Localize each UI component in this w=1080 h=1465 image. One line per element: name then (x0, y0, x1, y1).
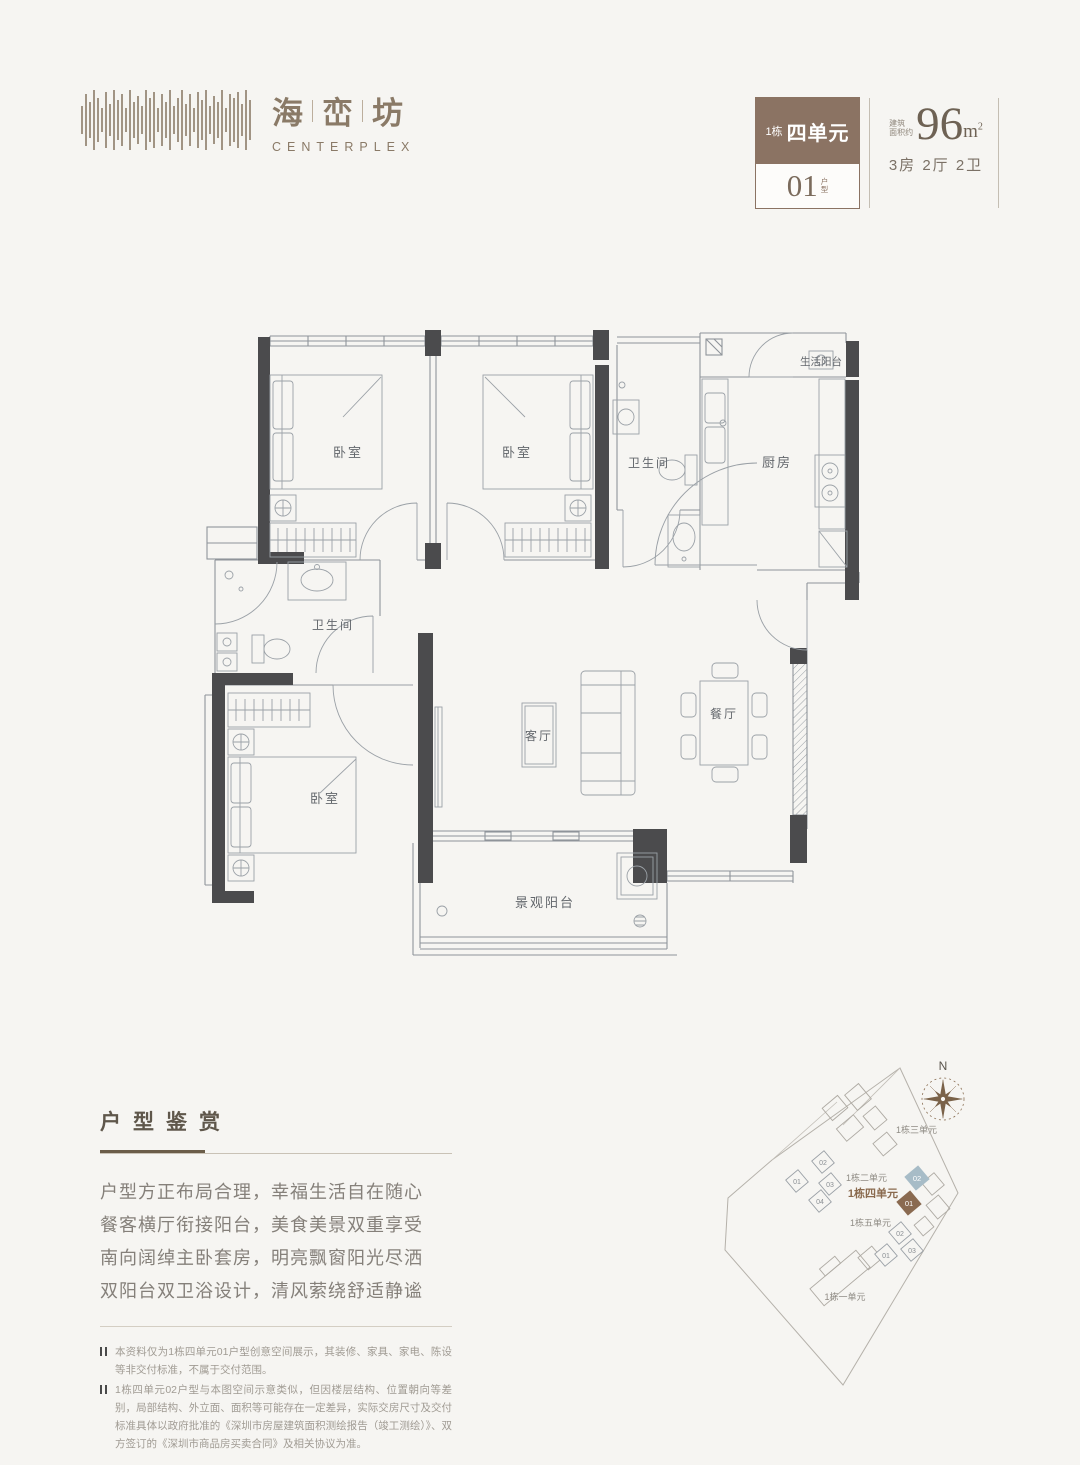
structural-walls (212, 330, 859, 903)
unit-marker-secondary: 02 (913, 1174, 921, 1183)
note-bullet-icon (100, 1385, 107, 1394)
room-label-landscape-balcony: 景观阳台 (515, 895, 575, 910)
unit-label: 四单元 (787, 117, 850, 146)
svg-text:02: 02 (819, 1160, 827, 1167)
room-label-bathroom: 卫生间 (628, 456, 670, 470)
logo-separator (312, 100, 313, 122)
area-info: 建筑 面积约 96 m2 3房 2厅 2卫 (880, 102, 992, 175)
unit-badge-header: 1栋 四单元 (756, 98, 859, 164)
room-label-kitchen: 厨房 (762, 455, 792, 470)
unit-badge-body: 01 户 型 (756, 164, 859, 208)
area-prefix: 建筑 面积约 (889, 119, 913, 137)
unit-markers-building2: 01 02 03 04 (786, 1151, 842, 1213)
wall-lines (205, 333, 859, 955)
building-labels: 1栋三单元 1栋二单元 1栋五单元 1栋一单元 1栋四单元 (824, 1124, 937, 1302)
svg-text:02: 02 (896, 1231, 904, 1238)
door-arcs (316, 333, 807, 765)
unit-number: 01 (787, 168, 818, 204)
room-label-dining-room: 餐厅 (710, 706, 738, 721)
north-label: N (939, 1059, 948, 1073)
area-unit: m2 (963, 121, 983, 143)
brand-char: 峦 (322, 88, 353, 133)
unit-markers-building5: 02 01 03 (875, 1222, 924, 1267)
room-label-master-bedroom: 卧室 (310, 791, 340, 806)
section-title: 户型鉴赏 (100, 1106, 452, 1136)
brand-name-cn: 海峦坊 (272, 88, 415, 133)
building-label: 1栋 (765, 123, 782, 139)
room-label-bedroom: 卧室 (333, 445, 363, 460)
building4-label: 1栋四单元 (848, 1186, 898, 1200)
compass-icon: N (922, 1059, 964, 1120)
floorplan-drawing: 卧室 卧室 卫生间 厨房 生活阳台 卫生间 卧室 客厅 餐厅 景观阳台 (185, 315, 875, 985)
appreciation-line: 双阳台双卫浴设计，清风萦绕舒适静谧 (100, 1275, 452, 1308)
logo-separator (362, 100, 363, 122)
svg-text:01: 01 (882, 1253, 890, 1260)
site-boundary (725, 1068, 958, 1385)
area-value: 96 (916, 102, 963, 146)
logo-barcode-icon (80, 89, 256, 153)
disclaimer-note: 本资料仅为1栋四单元01户型创意空间展示，其装修、家具、家电、陈设等非交付标准，… (100, 1343, 452, 1379)
unit-markers-building4: 02 01 (896, 1165, 929, 1215)
room-label-bathroom: 卫生间 (312, 618, 354, 632)
appreciation-section: 户型鉴赏 户型方正布局合理，幸福生活自在随心 餐客横厅衔接阳台，美食美景双重享受… (100, 1106, 452, 1455)
title-divider (100, 1150, 452, 1154)
svg-text:01: 01 (793, 1179, 801, 1186)
header-divider (998, 98, 999, 208)
brand-char: 海 (272, 88, 303, 133)
svg-text:03: 03 (908, 1248, 916, 1255)
appreciation-line: 户型方正布局合理，幸福生活自在随心 (100, 1176, 452, 1209)
room-label-service-balcony: 生活阳台 (800, 355, 842, 368)
brand-name-en: CENTERPLEX (272, 140, 415, 154)
brand-logo: 海峦坊 CENTERPLEX (80, 88, 415, 154)
appreciation-line: 南向阔绰主卧套房，明亮飘窗阳光尽洒 (100, 1242, 452, 1275)
disclaimer-note: 1栋四单元02户型与本图空间示意类似，但因楼层结构、位置朝向等差别，局部结构、外… (100, 1381, 452, 1453)
building3-label: 1栋三单元 (896, 1124, 937, 1135)
disclaimer-notes: 本资料仅为1栋四单元01户型创意空间展示，其装修、家具、家电、陈设等非交付标准，… (100, 1343, 452, 1453)
room-label-living-room: 客厅 (525, 728, 553, 743)
appreciation-lines: 户型方正布局合理，幸福生活自在随心 餐客横厅衔接阳台，美食美景双重享受 南向阔绰… (100, 1176, 452, 1308)
floorplan-poster: 海峦坊 CENTERPLEX 1栋 四单元 01 户 型 建筑 面积约 96 m… (0, 0, 1080, 1465)
appreciation-line: 餐客横厅衔接阳台，美食美景双重享受 (100, 1209, 452, 1242)
unit-number-suffix: 户 型 (821, 178, 829, 194)
unit-marker-highlight: 01 (905, 1199, 913, 1208)
notes-divider (100, 1326, 452, 1327)
brand-char: 坊 (372, 88, 403, 133)
svg-text:04: 04 (816, 1199, 824, 1206)
building1-label: 1栋一单元 (824, 1291, 865, 1302)
brand-name-block: 海峦坊 CENTERPLEX (272, 88, 415, 154)
room-labels: 卧室 卧室 卫生间 厨房 生活阳台 卫生间 卧室 客厅 餐厅 景观阳台 (310, 355, 842, 910)
note-bullet-icon (100, 1347, 107, 1356)
building2-label: 1栋二单元 (846, 1172, 887, 1183)
room-label-bedroom: 卧室 (502, 445, 532, 460)
unit-badge: 1栋 四单元 01 户 型 (755, 97, 860, 209)
room-count-label: 3房 2厅 2卫 (880, 154, 992, 175)
svg-text:03: 03 (826, 1182, 834, 1189)
site-plan: N (700, 1050, 1080, 1430)
building5-label: 1栋五单元 (850, 1217, 891, 1228)
header-divider (869, 98, 870, 208)
